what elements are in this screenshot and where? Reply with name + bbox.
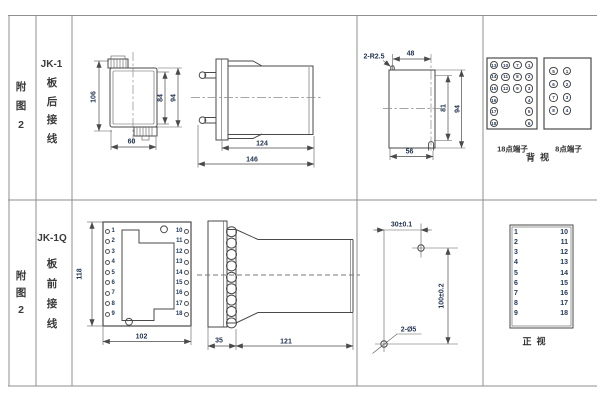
relay-rear-view-drawing	[94, 52, 182, 150]
terminal-circle: 3	[525, 84, 533, 92]
table-cell: 17	[560, 300, 568, 307]
terminal-circle: 8	[513, 73, 521, 81]
figure-label-char: 附	[16, 271, 27, 282]
socket-terminals-left: 123456789	[105, 228, 115, 318]
figure-label-row2: 附图2	[14, 271, 28, 316]
dim-label-124: 124	[256, 140, 268, 147]
terminal-circle: 3	[563, 93, 571, 101]
socket-terminal: 17	[169, 300, 189, 307]
terminal-circle: 13	[490, 61, 498, 69]
model-label-jk1: JK-1	[36, 60, 67, 70]
socket-terminals-right: 101112131415161718	[169, 228, 189, 318]
relay-side-view-drawing	[191, 59, 322, 168]
socket-terminal: 15	[169, 279, 189, 286]
terminal-circle: 12	[501, 84, 509, 92]
dim-label-notch-radius: 2-R2.5	[363, 54, 384, 61]
front-view-label: 正 视	[522, 337, 545, 346]
terminal-circle: 1	[525, 61, 533, 69]
table-cell: 7	[514, 290, 518, 297]
terminal-table-left-column: 123456789	[514, 229, 518, 317]
terminal-circle: 5	[525, 107, 533, 115]
wiring-type-char: 板	[47, 259, 58, 270]
terminal-circle: 2	[525, 73, 533, 81]
socket-terminal: 9	[105, 311, 115, 318]
terminal-circle: 6	[549, 80, 557, 88]
dim-label-106: 106	[90, 91, 97, 103]
wiring-type-row2: 板前接线	[45, 259, 59, 330]
wiring-type-char: 板	[47, 78, 58, 89]
panel-cutout-drawing	[383, 54, 466, 160]
figure-label-char: 图	[16, 101, 27, 112]
terminal-circle: 15	[490, 84, 498, 92]
terminal-pins-side	[227, 227, 237, 328]
dim-label-146: 146	[246, 156, 258, 163]
socket-terminal: 4	[105, 259, 115, 266]
mounting-stud-bottom	[205, 118, 216, 124]
dim-label-60: 60	[128, 139, 136, 146]
terminal-block-18-label: 18点端子	[497, 145, 528, 153]
terminal-circle: 10	[501, 61, 509, 69]
dim-label-94-cutout: 94	[454, 105, 461, 113]
figure-label-char: 图	[16, 288, 27, 299]
socket-terminal: 1	[105, 228, 115, 235]
dim-label-118: 118	[77, 268, 84, 279]
terminal-table-right-column: 101112131415161718	[550, 229, 568, 317]
table-cell: 9	[514, 310, 518, 317]
table-cell: 11	[561, 239, 568, 246]
terminal-block-8: 51627384	[549, 65, 572, 118]
dim-label-35: 35	[215, 338, 223, 345]
dim-label-30: 30±0.1	[391, 221, 412, 228]
terminal-block-18: 131071141182151293160041700518006	[488, 60, 535, 130]
terminal-circle: 17	[490, 107, 498, 115]
dim-label-84: 84	[157, 94, 164, 102]
terminal-circle: 7	[549, 93, 557, 101]
table-cell: 5	[514, 270, 518, 277]
terminal-circle: 4	[525, 96, 533, 104]
mounting-hole-top	[161, 226, 168, 233]
terminal-circle: 14	[490, 73, 498, 81]
dim-label-121: 121	[280, 338, 292, 345]
terminal-block-8-label: 8点端子	[555, 145, 582, 153]
wiring-type-row1: 板后接线	[45, 78, 59, 144]
dim-label-102: 102	[136, 333, 148, 340]
table-cell: 16	[560, 290, 568, 297]
socket-terminal: 5	[105, 269, 115, 276]
wiring-type-char: 接	[47, 115, 58, 126]
socket-terminal: 3	[105, 248, 115, 255]
terminal-circle: 6	[525, 119, 533, 127]
terminal-circle: 4	[563, 106, 571, 114]
socket-terminal: 11	[169, 238, 189, 245]
terminal-circle: 5	[549, 67, 557, 75]
table-cell: 1	[514, 229, 518, 236]
dim-label-100: 100±0.2	[439, 283, 446, 308]
dim-label-hole-spec: 2-Ø5	[401, 326, 417, 333]
table-cell: 14	[560, 270, 568, 277]
terminal-circle: 2	[563, 80, 571, 88]
table-cell: 8	[514, 300, 518, 307]
socket-terminal: 10	[169, 228, 189, 235]
dim-label-56: 56	[406, 149, 414, 156]
socket-terminal: 8	[105, 300, 115, 307]
socket-terminal: 14	[169, 269, 189, 276]
terminal-circle: 7	[513, 61, 521, 69]
figure-canvas: 附图2 JK-1 板后接线 106 84 94 60 124 146 2-R2.…	[0, 0, 600, 400]
figure-label-char: 2	[18, 120, 24, 131]
socket-terminal: 7	[105, 290, 115, 297]
socket-terminal: 16	[169, 290, 189, 297]
terminal-circle: 11	[501, 73, 509, 81]
figure-label-row1: 附图2	[14, 82, 28, 131]
wiring-type-char: 前	[47, 279, 58, 290]
figure-label-char: 附	[16, 82, 27, 93]
socket-terminal: 13	[169, 259, 189, 266]
table-cell: 4	[514, 259, 518, 266]
terminal-circle: 16	[490, 96, 498, 104]
terminal-circle: 18	[490, 119, 498, 127]
table-cell: 15	[560, 280, 568, 287]
mounting-stud-top	[205, 73, 216, 79]
table-cell: 13	[560, 259, 568, 266]
socket-terminal: 18	[169, 311, 189, 318]
terminal-circle: 9	[513, 84, 521, 92]
model-label-jk1q: JK-1Q	[34, 234, 70, 244]
socket-terminal: 2	[105, 238, 115, 245]
wiring-type-char: 线	[47, 134, 58, 145]
rear-view-label: 背 视	[526, 153, 549, 162]
wiring-type-char: 后	[47, 97, 58, 108]
mounting-hole-bottom	[126, 318, 133, 325]
table-cell: 2	[514, 239, 518, 246]
table-cell: 10	[560, 229, 568, 236]
wiring-type-char: 线	[47, 319, 58, 330]
terminal-circle: 8	[549, 106, 557, 114]
table-cell: 3	[514, 249, 518, 256]
terminal-circle: 1	[563, 67, 571, 75]
socket-terminal: 6	[105, 279, 115, 286]
figure-label-char: 2	[18, 305, 24, 316]
table-cell: 12	[560, 249, 568, 256]
wiring-type-char: 接	[47, 299, 58, 310]
table-cell: 6	[514, 280, 518, 287]
socket-side-view-drawing	[197, 221, 360, 350]
dim-label-94-case: 94	[170, 94, 177, 102]
dim-label-48: 48	[407, 50, 415, 57]
table-cell: 18	[560, 310, 568, 317]
socket-terminal: 12	[169, 248, 189, 255]
dim-label-81: 81	[440, 104, 447, 112]
